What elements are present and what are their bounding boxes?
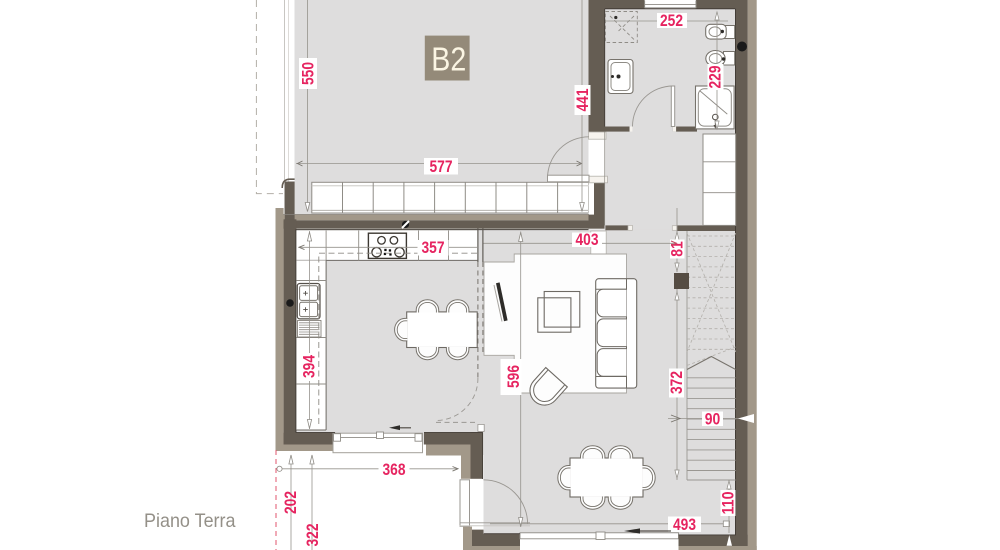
svg-text:372: 372	[667, 371, 686, 394]
svg-text:441: 441	[573, 89, 592, 112]
svg-text:202: 202	[281, 491, 300, 514]
svg-text:110: 110	[719, 492, 738, 515]
svg-text:229: 229	[706, 66, 725, 89]
svg-text:Piano Terra: Piano Terra	[144, 510, 236, 532]
svg-text:403: 403	[576, 230, 599, 249]
svg-text:357: 357	[422, 238, 445, 257]
svg-text:252: 252	[660, 11, 683, 30]
svg-text:B2: B2	[431, 41, 466, 78]
svg-text:322: 322	[303, 524, 322, 547]
svg-text:596: 596	[504, 365, 523, 388]
svg-text:368: 368	[383, 460, 406, 479]
svg-text:493: 493	[673, 515, 696, 534]
svg-text:550: 550	[299, 62, 318, 85]
svg-text:90: 90	[705, 409, 721, 428]
svg-text:577: 577	[430, 157, 453, 176]
svg-text:394: 394	[300, 355, 319, 378]
